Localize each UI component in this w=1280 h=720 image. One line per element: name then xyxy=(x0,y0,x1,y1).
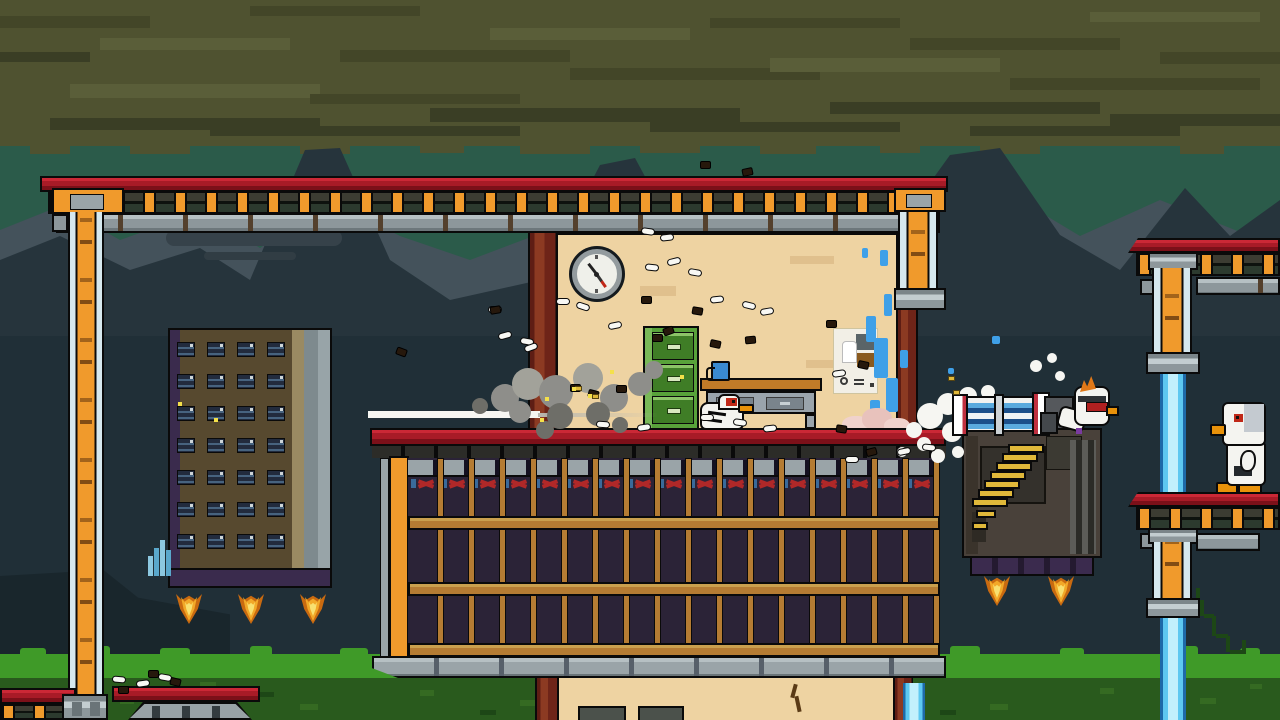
treetop-blotch xyxy=(710,18,900,28)
main-girder-top xyxy=(40,176,948,192)
platform-notch xyxy=(152,706,160,718)
smoke-smear xyxy=(204,252,296,260)
game-viewport[interactable] xyxy=(0,0,1280,720)
treetop-tuft xyxy=(760,144,816,154)
building-window xyxy=(177,374,195,389)
machine-vent xyxy=(972,530,986,542)
foot-notch xyxy=(72,702,82,716)
treetop-blotch xyxy=(250,6,420,16)
small-platform-legs xyxy=(130,704,250,718)
treetop-band xyxy=(0,0,1280,146)
hanging-pillar-shaft xyxy=(898,212,938,290)
railing-left-rail xyxy=(380,458,389,660)
railing-ledge xyxy=(372,656,946,678)
duck-beak xyxy=(738,404,754,413)
treetop-tuft xyxy=(30,144,70,154)
treetop-tuft xyxy=(640,145,700,153)
building-window xyxy=(237,406,255,421)
duck-flying[interactable] xyxy=(1040,378,1124,448)
water-stream xyxy=(903,683,925,720)
duck-wing xyxy=(1240,450,1256,472)
energy-beam xyxy=(1160,374,1186,494)
building-window xyxy=(237,534,255,549)
building-edge xyxy=(318,330,330,586)
bullet-trail xyxy=(368,411,540,418)
lower-right-pillar-shaft xyxy=(1152,542,1192,600)
duck-goggles xyxy=(1086,402,1108,412)
building-base xyxy=(170,568,330,586)
building-window xyxy=(177,342,195,357)
building-window xyxy=(267,438,285,453)
building-window xyxy=(267,342,285,357)
duck-accent xyxy=(1076,428,1082,434)
building-window xyxy=(177,534,195,549)
treetop-tuft xyxy=(130,142,190,154)
treetop-blotch xyxy=(210,126,520,136)
duck-eye xyxy=(732,400,735,403)
upper-right-platform-top xyxy=(1128,238,1280,253)
cabinet-drawer xyxy=(652,364,694,392)
filing-cabinet xyxy=(643,326,699,434)
treetop-blotch xyxy=(70,84,320,98)
building-window xyxy=(237,470,255,485)
treetop-blotch xyxy=(100,38,290,50)
rocket-machine xyxy=(962,428,1102,576)
treetop-tuft xyxy=(1180,144,1224,154)
small-platform xyxy=(112,686,260,702)
lower-right-platform-slats xyxy=(1136,507,1280,530)
treetop-blotch xyxy=(0,16,150,28)
building-window xyxy=(177,502,195,517)
treetop-blotch xyxy=(1090,12,1260,22)
hanging-pillar-bracket xyxy=(906,194,932,208)
duck-standing[interactable] xyxy=(1212,400,1272,496)
building-window xyxy=(177,406,195,421)
building-window xyxy=(267,534,285,549)
cabinet-drawer xyxy=(652,332,694,360)
railing-rail xyxy=(408,516,940,530)
left-pillar-foot xyxy=(62,694,108,720)
treetop-blotch xyxy=(1010,78,1260,90)
building-window xyxy=(207,342,225,357)
railing-rail xyxy=(408,643,940,657)
lower-right-pillar-cap xyxy=(1146,598,1200,618)
lower-cabinet-top xyxy=(638,706,684,720)
building-window xyxy=(237,342,255,357)
treetop-blotch xyxy=(0,52,90,62)
clock-center xyxy=(594,272,599,277)
treetop-tuft xyxy=(880,145,920,153)
building-window xyxy=(267,502,285,517)
background-building xyxy=(168,328,332,588)
building-window xyxy=(267,374,285,389)
building-window xyxy=(207,406,225,421)
cabinet-drawer xyxy=(652,396,694,424)
treetop-blotch xyxy=(910,38,1120,50)
treetop-blotch xyxy=(430,108,740,122)
railing-girder xyxy=(372,446,946,458)
pipe-stub xyxy=(52,214,68,232)
office-floor xyxy=(370,428,946,446)
railing-field xyxy=(408,458,940,656)
building-window xyxy=(207,502,225,517)
upper-right-pillar-shaft xyxy=(1152,268,1192,354)
railing-rail xyxy=(408,582,940,596)
clock-tick xyxy=(595,255,598,259)
platform-notch xyxy=(212,706,220,718)
building-window xyxy=(237,502,255,517)
hanging-pillar-foot xyxy=(894,288,946,310)
clock-tick xyxy=(595,289,598,293)
treetop-blotch xyxy=(340,50,570,62)
mug-handle xyxy=(706,367,715,381)
treetop-blotch xyxy=(310,94,520,104)
left-pillar-bracket xyxy=(70,194,104,210)
poster-glyph xyxy=(870,383,874,387)
upper-right-platform-pipe xyxy=(1196,277,1280,295)
corner-platform-slats xyxy=(0,704,64,720)
building-window xyxy=(207,438,225,453)
machine-panel xyxy=(980,446,1046,504)
main-girder-slats xyxy=(48,191,940,214)
net-gun xyxy=(950,390,1052,438)
building-edge xyxy=(292,330,304,586)
treetop-blotch xyxy=(1110,114,1280,126)
poster-blotch xyxy=(856,334,874,350)
lower-right-platform-pipe xyxy=(1196,533,1260,551)
building-window xyxy=(177,470,195,485)
building-edge xyxy=(304,330,318,586)
left-pillar-shaft xyxy=(68,212,104,698)
machine-slats xyxy=(1070,440,1096,554)
treetop-blotch xyxy=(830,102,1100,114)
main-girder-pipe xyxy=(56,213,940,233)
duck-beak xyxy=(1106,406,1119,416)
foot-notch xyxy=(90,702,100,716)
desk-drawer xyxy=(766,397,804,410)
treetop-tuft xyxy=(420,145,464,153)
poster-duck xyxy=(842,341,857,363)
building-window xyxy=(177,438,195,453)
treetop-blotch xyxy=(770,58,1000,72)
treetop-blotch xyxy=(490,28,690,40)
wall-poster xyxy=(833,328,878,394)
building-window xyxy=(207,470,225,485)
gun-ring xyxy=(994,394,1004,436)
duck-pupil xyxy=(1236,416,1239,419)
poster-glyph xyxy=(840,377,848,385)
poster-glyph xyxy=(854,379,864,381)
railing-left-plank xyxy=(389,456,409,662)
railing-top-blocks xyxy=(408,460,940,477)
desk-leg xyxy=(805,414,816,429)
lower-floor-left-pillar xyxy=(535,678,559,720)
duck-beak xyxy=(1210,424,1226,436)
treetop-blotch xyxy=(650,122,900,132)
platform-notch xyxy=(182,706,190,718)
flying-mug xyxy=(711,361,730,381)
duck-pack xyxy=(1040,412,1058,434)
machine-vent xyxy=(972,512,986,524)
building-window xyxy=(237,374,255,389)
duck-helmet xyxy=(1244,404,1264,432)
treetop-blotch xyxy=(970,126,1180,136)
building-window xyxy=(237,438,255,453)
energy-beam xyxy=(1160,618,1186,720)
treetop-blotch xyxy=(1160,52,1280,64)
treetop-tuft xyxy=(520,142,590,154)
upper-right-pillar-cap xyxy=(1146,352,1200,374)
machine-base xyxy=(970,556,1094,576)
building-window xyxy=(267,406,285,421)
building-window xyxy=(207,374,225,389)
bullet-trail-fade xyxy=(538,413,658,417)
wall-clock xyxy=(572,249,622,299)
lower-cabinet-top xyxy=(578,706,626,720)
building-window xyxy=(207,534,225,549)
poster-desk xyxy=(857,353,874,367)
building-window xyxy=(267,470,285,485)
